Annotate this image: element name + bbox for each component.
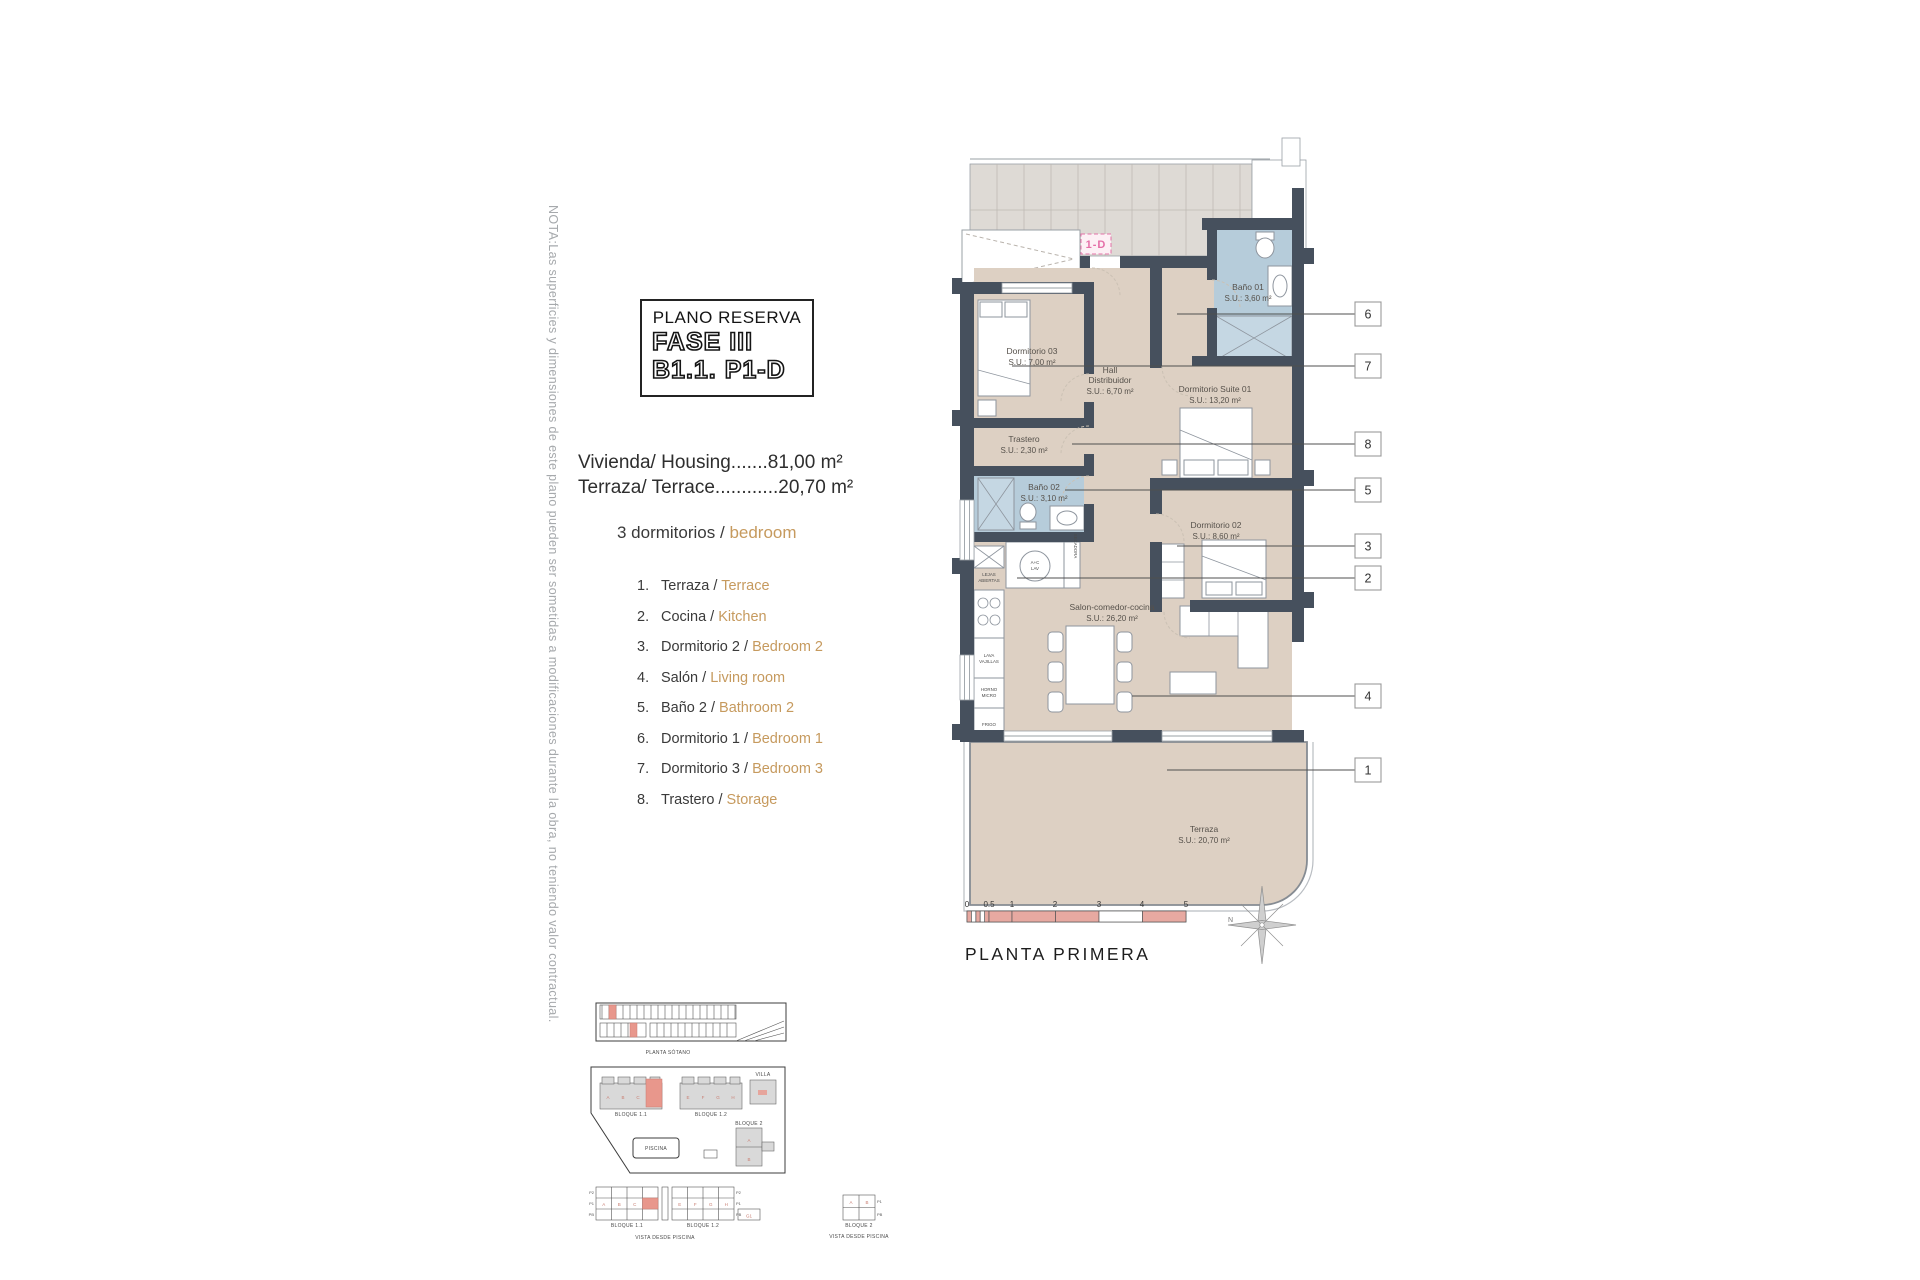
svg-text:4: 4: [1365, 690, 1372, 704]
piscina: PISCINA: [633, 1138, 679, 1158]
room-label-dorm02: Dormitorio 02: [1190, 520, 1241, 530]
bedrooms-en: bedroom: [729, 523, 796, 542]
svg-text:BLOQUE 2: BLOQUE 2: [845, 1223, 872, 1229]
svg-text:P2: P2: [736, 1190, 742, 1195]
chair: [1117, 692, 1132, 712]
svg-text:ABIERTAS: ABIERTAS: [978, 578, 999, 583]
svg-text:3: 3: [1365, 540, 1372, 554]
svg-text:B: B: [865, 1200, 868, 1205]
svg-text:PB: PB: [589, 1212, 595, 1217]
elevation-core: [662, 1187, 668, 1220]
nightstand: [1162, 460, 1177, 475]
terrace-floor: [970, 742, 1307, 905]
phase-title: FASE III: [642, 328, 812, 356]
floor-name: PLANTA PRIMERA: [965, 944, 1150, 964]
svg-text:P1: P1: [736, 1201, 742, 1206]
bedrooms-line: 3 dormitorios / bedroom: [617, 523, 797, 543]
legend-item: 5.Baño 2 / Bathroom 2: [637, 700, 823, 716]
elevation-bloque2: A B P1 PB BLOQUE 2 VISTA DESDE PISCINA: [829, 1195, 889, 1240]
svg-text:G1: G1: [746, 1214, 753, 1219]
svg-text:VILLA: VILLA: [755, 1072, 770, 1078]
unit-title: B1.1. P1-D: [642, 356, 812, 384]
room-label-hall: Hall: [1103, 365, 1118, 375]
svg-text:F: F: [694, 1202, 697, 1207]
legend-item: 6.Dormitorio 1 / Bedroom 1: [637, 731, 823, 747]
svg-text:S.U.: 20,70 m²: S.U.: 20,70 m²: [1178, 836, 1230, 845]
highlight-parking: [609, 1005, 616, 1019]
dishwasher: [974, 638, 1004, 678]
svg-text:PB: PB: [877, 1212, 883, 1217]
legend-item: 2.Cocina / Kitchen: [637, 609, 823, 625]
svg-text:Distribuidor: Distribuidor: [1089, 375, 1132, 385]
svg-text:B: B: [621, 1095, 624, 1100]
legend-item: 4.Salón / Living room: [637, 670, 823, 686]
svg-text:5: 5: [1365, 484, 1372, 498]
chair: [1048, 632, 1063, 652]
vista-caption-1: VISTA DESDE PISCINA: [635, 1235, 695, 1241]
svg-text:7: 7: [1365, 360, 1372, 374]
housing-area: Vivienda/ Housing.......81,00 m²: [578, 450, 853, 475]
room-label-suite: Dormitorio Suite 01: [1179, 384, 1252, 394]
svg-text:E: E: [678, 1202, 681, 1207]
plan-kicker: PLANO RESERVA: [642, 308, 812, 328]
svg-text:2: 2: [1365, 572, 1372, 586]
floor-plan: 1-D: [950, 130, 1394, 970]
svg-text:PISCINA: PISCINA: [645, 1146, 667, 1152]
elevation-bloque11: A B C P2 P1 PB BLOQUE 1.1: [589, 1187, 658, 1229]
compass-north-label: N: [1228, 917, 1233, 924]
svg-text:A: A: [849, 1200, 852, 1205]
nightstand: [978, 400, 996, 416]
title-box: PLANO RESERVA FASE III B1.1. P1-D: [640, 299, 814, 397]
svg-text:5: 5: [1184, 900, 1189, 909]
svg-text:FRIGO: FRIGO: [982, 722, 996, 727]
svg-text:SECADORA: SECADORA: [1073, 534, 1078, 559]
chair: [1048, 662, 1063, 682]
room-label-terraza: Terraza: [1190, 824, 1219, 834]
svg-text:1-D: 1-D: [1086, 239, 1107, 251]
unit-tag: 1-D: [1081, 234, 1111, 254]
highlight-unit-elevation: [643, 1198, 659, 1209]
site-diagrams: PLANTA SÓTANO A B C BLOQUE 1.1 E F G H B…: [588, 995, 918, 1245]
svg-text:S.U.: 8,60 m²: S.U.: 8,60 m²: [1192, 532, 1239, 541]
svg-text:BLOQUE 2: BLOQUE 2: [735, 1121, 762, 1127]
svg-text:LEJAS: LEJAS: [982, 572, 995, 577]
svg-text:0.5: 0.5: [983, 900, 995, 909]
svg-text:1: 1: [1010, 900, 1015, 909]
svg-text:S.U.: 6,70 m²: S.U.: 6,70 m²: [1086, 387, 1133, 396]
svg-text:MICRO: MICRO: [982, 693, 997, 698]
svg-text:A: A: [602, 1202, 605, 1207]
room-label-bano01: Baño 01: [1232, 282, 1264, 292]
svg-text:BLOQUE 1.2: BLOQUE 1.2: [695, 1112, 727, 1118]
svg-text:P1: P1: [877, 1199, 883, 1204]
site-plan: A B C BLOQUE 1.1 E F G H BLOQUE 1.2 VILL…: [591, 1067, 785, 1173]
room-label-dorm03: Dormitorio 03: [1006, 346, 1057, 356]
room-legend: 1.Terraza / Terrace 2.Cocina / Kitchen 3…: [637, 578, 823, 822]
svg-text:HORNO: HORNO: [981, 687, 998, 692]
svg-text:A: A: [747, 1138, 750, 1143]
disclaimer-note: NOTA:Las superficies y dimensiones de es…: [546, 205, 560, 1105]
svg-text:P2: P2: [589, 1190, 595, 1195]
svg-text:F: F: [702, 1095, 705, 1100]
svg-text:LAV: LAV: [1031, 566, 1039, 571]
terrace-area: Terraza/ Terrace............20,70 m²: [578, 475, 853, 500]
room-label-salon: Salon-comedor-cocina: [1069, 602, 1154, 612]
legend-item: 7.Dormitorio 3 / Bedroom 3: [637, 761, 823, 777]
svg-text:C: C: [633, 1202, 637, 1207]
svg-text:A: A: [606, 1095, 609, 1100]
svg-text:S.U.: 13,20 m²: S.U.: 13,20 m²: [1189, 396, 1241, 405]
dining-table: [1066, 626, 1114, 704]
chair: [1117, 662, 1132, 682]
room-label-bano02: Baño 02: [1028, 482, 1060, 492]
coffee-table: [1170, 672, 1216, 694]
bedrooms-es: 3 dormitorios /: [617, 523, 725, 542]
chair: [1048, 692, 1063, 712]
basement-caption: PLANTA SÓTANO: [646, 1049, 691, 1056]
svg-text:0: 0: [965, 900, 970, 909]
highlight-unit: [646, 1079, 662, 1107]
svg-text:H: H: [725, 1202, 728, 1207]
svg-text:LAVA: LAVA: [984, 653, 995, 658]
svg-text:S.U.: 3,10 m²: S.U.: 3,10 m²: [1020, 494, 1067, 503]
svg-text:6: 6: [1365, 308, 1372, 322]
elevation-bloque12: E F G H P2 P1 PB BLOQUE 1.2 G1: [672, 1187, 760, 1229]
legend-item: 8.Trastero / Storage: [637, 792, 823, 808]
svg-text:3: 3: [1097, 900, 1102, 909]
svg-text:P1: P1: [589, 1201, 595, 1206]
legend-item: 3.Dormitorio 2 / Bedroom 2: [637, 639, 823, 655]
basement-plan: PLANTA SÓTANO: [596, 1003, 786, 1056]
svg-text:BLOQUE 1.1: BLOQUE 1.1: [611, 1223, 643, 1229]
svg-text:B: B: [747, 1157, 750, 1162]
svg-text:S.U.: 3,60 m²: S.U.: 3,60 m²: [1224, 294, 1271, 303]
svg-text:4: 4: [1140, 900, 1145, 909]
svg-text:1: 1: [1365, 764, 1372, 778]
svg-text:A+C: A+C: [1031, 560, 1040, 565]
legend-item: 1.Terraza / Terrace: [637, 578, 823, 594]
svg-text:2: 2: [1053, 900, 1058, 909]
svg-text:BLOQUE 1.1: BLOQUE 1.1: [615, 1112, 647, 1118]
wardrobe: [1160, 544, 1184, 598]
svg-text:E: E: [686, 1095, 689, 1100]
nightstand: [1255, 460, 1270, 475]
svg-text:S.U.: 2,30 m²: S.U.: 2,30 m²: [1000, 446, 1047, 455]
area-summary: Vivienda/ Housing.......81,00 m² Terraza…: [578, 450, 853, 500]
svg-text:VAJILLAS: VAJILLAS: [979, 659, 999, 664]
svg-text:PB: PB: [736, 1212, 742, 1217]
svg-text:H: H: [731, 1095, 734, 1100]
toilet: [1020, 522, 1036, 529]
hob: [974, 590, 1004, 638]
room-label-trastero: Trastero: [1008, 434, 1040, 444]
svg-text:G: G: [716, 1095, 720, 1100]
chair: [1117, 632, 1132, 652]
svg-text:8: 8: [1365, 438, 1372, 452]
vista-caption-2: VISTA DESDE PISCINA: [829, 1234, 889, 1240]
svg-text:G: G: [709, 1202, 713, 1207]
svg-text:BLOQUE 1.2: BLOQUE 1.2: [687, 1223, 719, 1229]
svg-text:B: B: [618, 1202, 621, 1207]
svg-text:S.U.: 26,20 m²: S.U.: 26,20 m²: [1086, 614, 1138, 623]
highlight-storage: [630, 1023, 637, 1037]
